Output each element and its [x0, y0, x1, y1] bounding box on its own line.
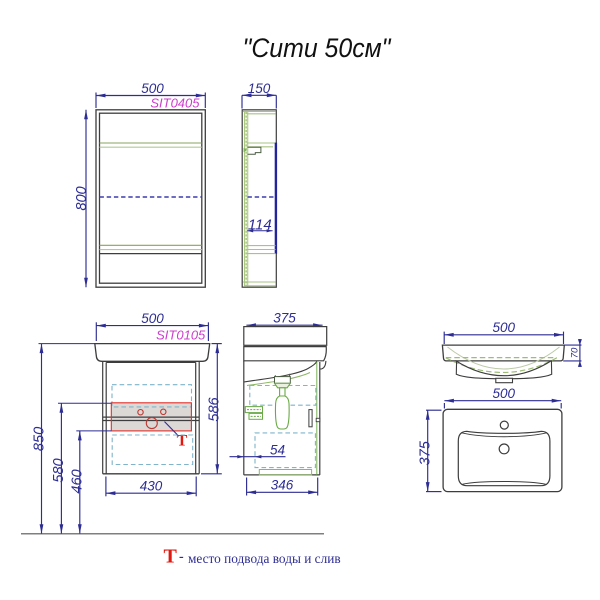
- svg-text:Т: Т: [164, 546, 178, 568]
- svg-text:место подвода воды и слив: место подвода воды и слив: [188, 551, 341, 566]
- svg-text:54: 54: [270, 443, 285, 458]
- svg-text:500: 500: [493, 320, 516, 335]
- svg-text:800: 800: [74, 186, 90, 210]
- svg-text:70: 70: [570, 347, 581, 358]
- svg-text:460: 460: [69, 469, 85, 493]
- svg-text:-: -: [179, 550, 184, 565]
- svg-text:346: 346: [271, 478, 294, 493]
- svg-text:430: 430: [140, 478, 163, 493]
- svg-text:375: 375: [273, 310, 296, 325]
- svg-text:500: 500: [141, 81, 164, 96]
- svg-text:500: 500: [493, 386, 516, 401]
- svg-text:586: 586: [207, 396, 223, 421]
- svg-text:"Сити 50см": "Сити 50см": [243, 33, 392, 63]
- svg-text:500: 500: [141, 311, 164, 326]
- svg-text:SIT0405: SIT0405: [150, 96, 200, 111]
- svg-text:850: 850: [31, 427, 47, 451]
- svg-text:SIT0105: SIT0105: [156, 328, 206, 343]
- svg-text:150: 150: [248, 81, 271, 96]
- svg-text:375: 375: [418, 440, 434, 465]
- svg-text:580: 580: [51, 458, 67, 482]
